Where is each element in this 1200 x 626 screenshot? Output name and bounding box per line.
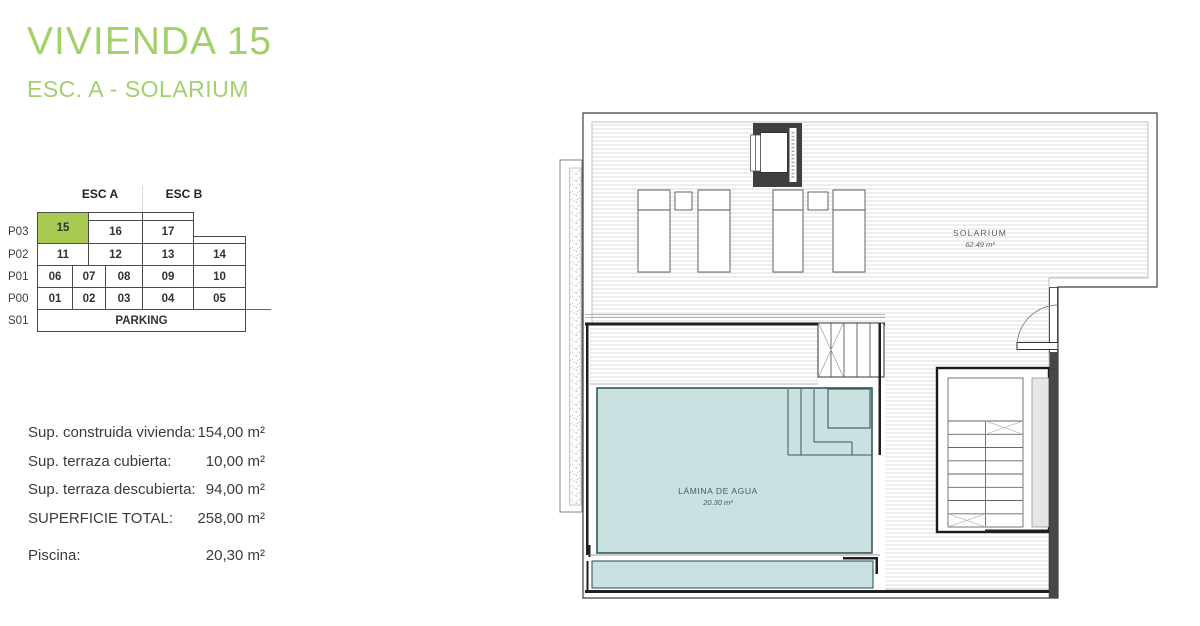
unit-cell-12: 12 <box>88 243 143 266</box>
unit-cell-15: 15 <box>37 212 89 244</box>
surface-label: Sup. construida vivienda: <box>28 424 196 441</box>
surface-label: Sup. terraza cubierta: <box>28 453 171 470</box>
surface-value: 94,00 m² <box>206 481 265 498</box>
surface-row: Sup. terraza cubierta: 10,00 m² <box>28 453 265 473</box>
elevator-shaft <box>751 123 803 187</box>
side-table <box>675 192 692 210</box>
surface-row: Sup. construida vivienda: 154,00 m² <box>28 424 265 444</box>
unit-cell-05: 05 <box>193 287 246 310</box>
surface-table: Sup. construida vivienda: 154,00 m² Sup.… <box>28 422 265 582</box>
unit-cell-06: 06 <box>37 265 73 288</box>
side-table <box>808 192 828 210</box>
row-label-p02: P02 <box>8 243 35 266</box>
unit-cell-09: 09 <box>142 265 194 288</box>
covered-terrace <box>590 327 818 384</box>
solarium-label: SOLARIUM <box>953 228 1007 238</box>
unit-cell-07: 07 <box>72 265 106 288</box>
sun-lounger <box>698 190 730 272</box>
row-label-p00: P00 <box>8 287 35 310</box>
pool-area-label: 20.30 m² <box>702 498 733 507</box>
row-label-p03: P03 <box>8 220 35 244</box>
header-esc-b: ESC B <box>166 187 203 201</box>
page-title: VIVIENDA 15 <box>27 20 272 64</box>
row-label-p01: P01 <box>8 265 35 288</box>
unit-cell-01: 01 <box>37 287 73 310</box>
unit-cell-02: 02 <box>72 287 106 310</box>
unit-cell-04: 04 <box>142 287 194 310</box>
surface-row: Sup. terraza descubierta: 94,00 m² <box>28 481 265 501</box>
unit-cell-03: 03 <box>105 287 143 310</box>
surface-label: Sup. terraza descubierta: <box>28 481 196 498</box>
unit-cell-14: 14 <box>193 243 246 266</box>
pool-step-platform <box>828 389 870 428</box>
ground-line <box>245 309 271 310</box>
solarium-area-label: 62.49 m² <box>965 240 995 249</box>
sun-lounger <box>833 190 865 272</box>
unit-cell-08: 08 <box>105 265 143 288</box>
pool-label: LÁMINA DE AGUA <box>678 486 758 496</box>
surface-row-total: SUPERFICIE TOTAL: 258,00 m² <box>28 510 265 530</box>
wall-section-strip <box>560 160 582 512</box>
floor-plan: LÁMINA DE AGUA 20.30 m² <box>540 95 1170 615</box>
elevator-car <box>761 133 788 173</box>
unit-cell-13: 13 <box>142 243 194 266</box>
plan-sheet: VIVIENDA 15 ESC. A - SOLARIUM ESC A ESC … <box>0 0 1200 626</box>
access-stair <box>818 323 884 377</box>
party-wall <box>1049 368 1058 598</box>
stairwell-wall-strip <box>1032 378 1049 527</box>
surface-value: 154,00 m² <box>197 424 265 441</box>
surface-label: SUPERFICIE TOTAL: <box>28 510 173 527</box>
door-leaf <box>1017 343 1058 350</box>
surface-value: 10,00 m² <box>206 453 265 470</box>
page-subtitle: ESC. A - SOLARIUM <box>27 76 249 103</box>
parking-cell: PARKING <box>37 309 246 332</box>
unit-cell-10: 10 <box>193 265 246 288</box>
unit-cell-17: 17 <box>142 220 194 244</box>
pool: LÁMINA DE AGUA 20.30 m² <box>597 388 872 553</box>
surface-label: Piscina: <box>28 547 81 564</box>
stairwell <box>937 368 1049 533</box>
building-position-diagram: ESC A ESC B P03 P02 P01 P00 S01 15 16 17… <box>8 186 280 338</box>
header-esc-a: ESC A <box>82 187 118 201</box>
surface-value: 258,00 m² <box>197 510 265 527</box>
sun-lounger <box>773 190 803 272</box>
surface-row-pool: Piscina: 20,30 m² <box>28 547 265 567</box>
sun-lounger <box>638 190 670 272</box>
unit-cell-11: 11 <box>37 243 89 266</box>
row-label-s01: S01 <box>8 309 35 332</box>
surface-value: 20,30 m² <box>206 547 265 564</box>
unit-cell-16: 16 <box>88 220 143 244</box>
